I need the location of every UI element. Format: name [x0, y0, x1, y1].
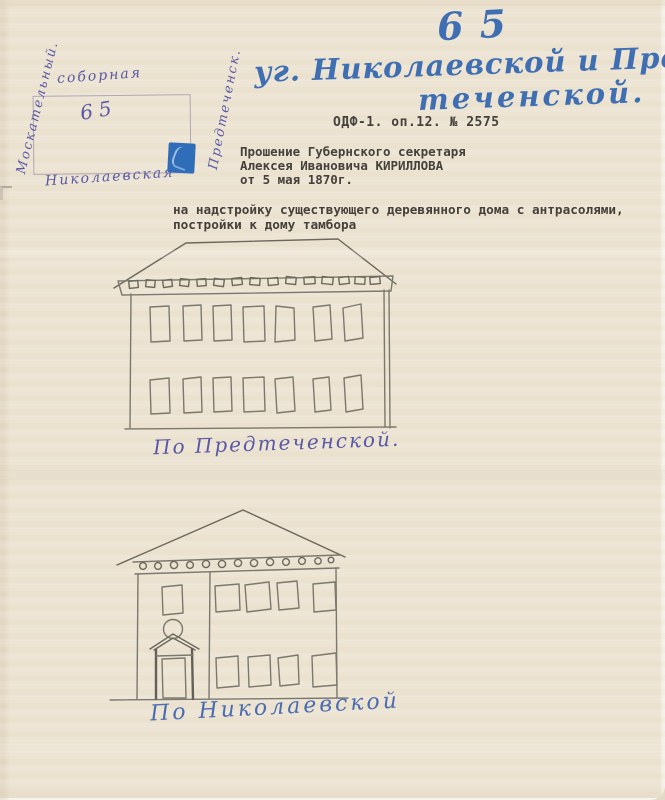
street-corner-heading-line2: теченской.: [417, 75, 645, 117]
facade-sketch-nikolaevskaya: [96, 496, 421, 708]
frieze-ornaments: [129, 276, 381, 288]
plot-location-marker: [167, 142, 196, 173]
petition-line3: от 5 мая 1870г.: [240, 173, 466, 187]
archive-reference: ОДФ-1. оп.12. № 2575: [333, 115, 500, 130]
plot-number-heading: 65: [436, 0, 523, 49]
subject-block: на надстройку существующего деревянного …: [173, 203, 624, 232]
left-window: [162, 585, 183, 615]
frieze-band: [133, 555, 340, 574]
upper-window-row: [215, 581, 336, 612]
roof-outline: [117, 510, 345, 565]
facade-sketch-predtechenskaya: [98, 232, 410, 442]
entrance-door: [156, 649, 193, 699]
frieze-ornaments: [140, 557, 334, 569]
subject-line1: на надстройку существующего деревянного …: [173, 203, 624, 218]
lower-window-row: [216, 653, 337, 688]
subject-line2: постройки к дому тамбора: [173, 218, 624, 233]
wall-right: [384, 290, 390, 428]
petition-line2: Алексея Ивановича КИРИЛЛОВА: [240, 159, 466, 173]
upper-window-row: [150, 304, 363, 342]
petition-line1: Прошение Губернского секретаря: [240, 145, 466, 159]
wall-left: [130, 294, 131, 428]
wall-divider: [209, 572, 210, 699]
wall-left: [137, 574, 138, 699]
paper-edge-mark: [0, 186, 12, 200]
round-window: [164, 620, 183, 639]
site-plan-street-right: Предтеченск.: [206, 47, 244, 171]
lower-window-row: [150, 375, 363, 414]
site-plan-street-top: соборная: [57, 65, 143, 87]
scan-streak: [0, 470, 665, 480]
door-pediment: [150, 634, 199, 650]
petition-block: Прошение Губернского секретаря Алексея И…: [240, 145, 466, 187]
scanned-document-page: 65 уг. Николаевской и Пред- теченской. О…: [0, 0, 665, 800]
scan-streak: [0, 744, 665, 752]
